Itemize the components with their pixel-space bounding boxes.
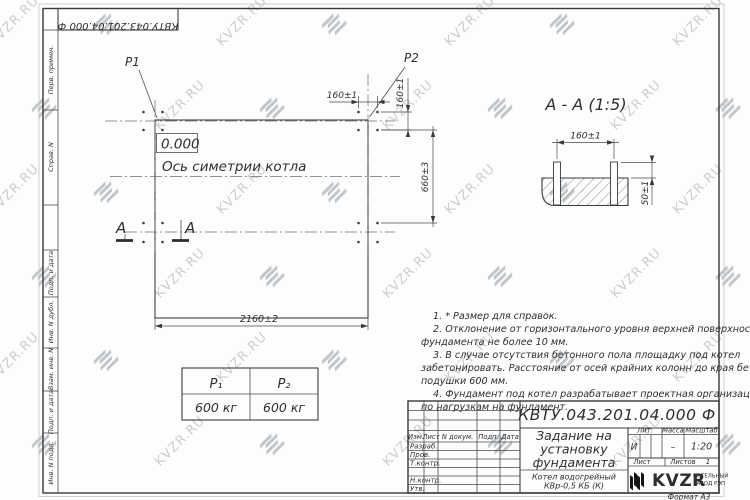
- note-line: 4. Фундамент под котел разрабатывает про…: [433, 388, 750, 400]
- level-mark: 0.000: [161, 137, 200, 153]
- load-point-p1: P1: [125, 55, 140, 69]
- tb-col-data: Дата: [500, 433, 519, 441]
- section-letter-left: А: [115, 219, 126, 237]
- rotated-doc-number: КВТУ.043.201.04.000 Ф: [57, 20, 178, 31]
- tb-sheets-label: Листов: [669, 458, 695, 466]
- margin-label: Инв. N дубл.: [47, 301, 55, 344]
- tb-scale-label: Масштаб: [685, 427, 717, 435]
- tb-mass-label: Масса: [662, 427, 684, 435]
- table-header-p1: P₁: [209, 377, 222, 392]
- margin-label: Подп. и дата: [47, 251, 55, 295]
- note-line: подушки 600 мм.: [421, 376, 508, 387]
- foundation-plan: P1 P2 0.000 Ось симетрии котла А А: [105, 51, 437, 330]
- margin-label: Перв. примен.: [47, 46, 55, 95]
- drawing-linework: Перв. примен. Справ. N Подп. и дата Инв.…: [0, 0, 750, 500]
- tb-product-line: Котел водогрейный: [532, 473, 616, 482]
- note-line: забетонировать. Расстояние от осей крайн…: [421, 362, 750, 374]
- kvzr-logo-icon: [629, 469, 651, 489]
- tb-row-tkontr: Т.контр.: [410, 459, 440, 467]
- note-line: фундамента не более 10 мм.: [421, 336, 568, 348]
- table-header-p2: P₂: [277, 377, 290, 392]
- dim-text: 160±1: [396, 78, 406, 108]
- note-line: 2. Отклонение от горизонтального уровня …: [433, 324, 750, 335]
- tb-logo-caption: ЗАВОД РЭП: [693, 481, 725, 487]
- dim-top-160: 160±1: [327, 91, 390, 108]
- dim-text: 660±3: [421, 162, 431, 193]
- note-line: 1. * Размер для справок.: [433, 311, 558, 322]
- tb-product-line: КВр-0,5 КБ (К): [544, 482, 604, 491]
- tb-col-ndoc: N докум.: [442, 433, 474, 441]
- anchor-bolt: [554, 162, 561, 205]
- dim-text: 160±1: [570, 132, 600, 142]
- table-value-p1: 600 кг: [195, 400, 237, 415]
- tb-logo-caption: КОТЕЛЬНЫЙ: [693, 473, 728, 480]
- margin-label: Инв. N подл.: [47, 442, 55, 485]
- dim-right-660: 660±3: [381, 126, 437, 227]
- margin-label: Справ. N: [47, 142, 55, 172]
- left-margin-labels: Перв. примен. Справ. N Подп. и дата Инв.…: [47, 46, 55, 485]
- table-value-p2: 600 кг: [263, 400, 305, 415]
- tb-scale-value: 1:20: [691, 442, 712, 453]
- dim-section-160: 160±1: [552, 132, 619, 160]
- title-block: Изм. Лист N докум. Подп. Дата Разраб. Пр…: [408, 401, 728, 500]
- tb-col-list: Лист: [421, 433, 440, 441]
- anchor-bolt-markers: [142, 111, 379, 244]
- tb-doc-number: КВТУ.043.201.04.000 Ф: [518, 406, 716, 424]
- top-rotated-stamp: КВТУ.043.201.04.000 Ф: [57, 9, 178, 32]
- tb-lit-value: И: [631, 443, 638, 453]
- dim-text: 50±1: [641, 181, 651, 206]
- tb-mass-value: –: [671, 443, 676, 453]
- section-view: А - А (1:5) 160±1 50±1: [542, 95, 656, 206]
- load-table: P₁ P₂ 600 кг 600 кг: [182, 368, 318, 420]
- tb-row-nkontr: Н.контр.: [410, 476, 441, 484]
- tb-sheets-value: 1: [706, 458, 710, 466]
- note-line: 3. В случае отсутствия бетонного пола пл…: [433, 349, 740, 361]
- tb-sheet-label: Лист: [632, 458, 651, 466]
- tb-row-razrab: Разраб.: [410, 442, 438, 450]
- tb-row-prov: Пров.: [410, 451, 430, 459]
- symmetry-axis-label: Ось симетрии котла: [162, 159, 306, 175]
- notes: 1. * Размер для справок. 2. Отклонение о…: [421, 311, 750, 413]
- tb-lit-label: Лит.: [636, 427, 653, 435]
- anchor-bolt: [611, 162, 618, 205]
- format-note: Формат А3: [668, 493, 711, 500]
- load-point-p2: P2: [404, 51, 419, 65]
- margin-label: Взам. инв. N: [47, 348, 55, 390]
- tb-row-utv: Утв.: [410, 485, 425, 493]
- dim-text: 160±1: [327, 91, 357, 101]
- section-letter-right: А: [184, 219, 195, 237]
- margin-label: Подп. и дата: [47, 390, 55, 434]
- tb-title-line: фундамента: [533, 455, 616, 470]
- dim-bottom-2160: 2160±2: [155, 314, 368, 330]
- dim-right-160: 160±1: [381, 78, 412, 137]
- drawing-sheet: KVZR.RUKVZR.RUKVZR.RUKVZR.RUKVZR.RUKVZR.…: [0, 0, 750, 500]
- dim-text: 2160±2: [240, 314, 278, 325]
- section-title: А - А (1:5): [544, 95, 626, 114]
- tb-col-podp: Подп.: [478, 433, 499, 441]
